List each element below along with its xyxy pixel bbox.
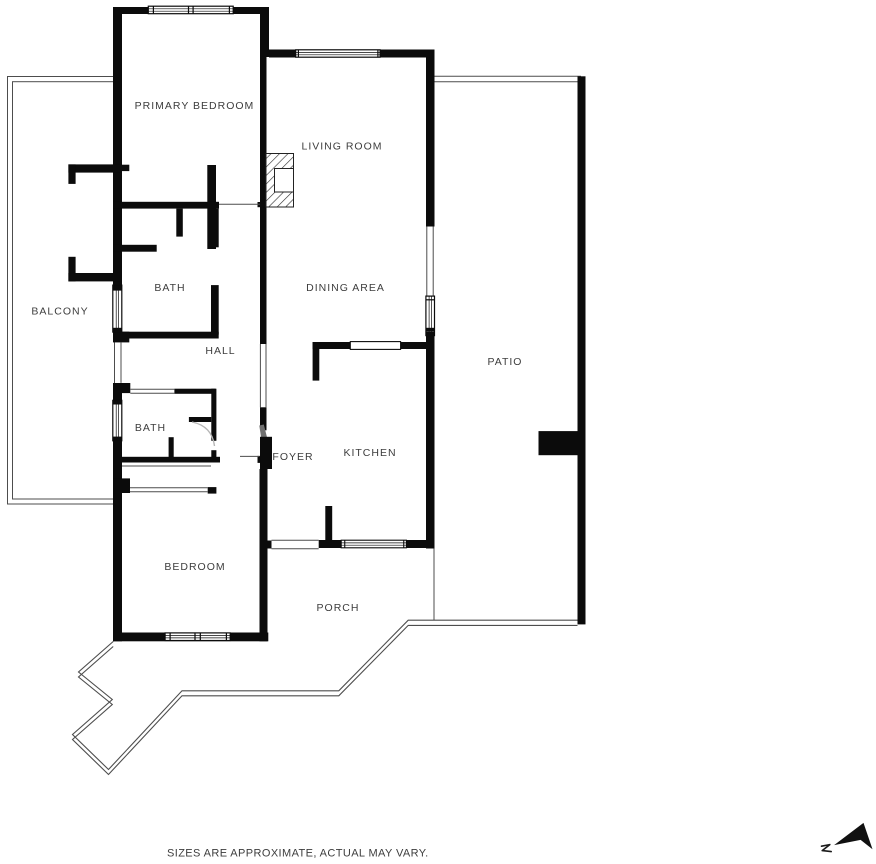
svg-text:PATIO: PATIO [488,356,523,368]
svg-text:KITCHEN: KITCHEN [343,447,396,459]
svg-text:BATH: BATH [154,282,185,294]
svg-text:PRIMARY BEDROOM: PRIMARY BEDROOM [135,100,255,112]
svg-text:BATH: BATH [135,422,166,434]
svg-text:SIZES ARE APPROXIMATE, ACTUAL: SIZES ARE APPROXIMATE, ACTUAL MAY VARY. [167,848,429,860]
svg-text:DINING AREA: DINING AREA [306,282,385,294]
svg-text:PORCH: PORCH [317,602,360,614]
svg-text:FOYER: FOYER [272,451,313,463]
svg-text:LIVING ROOM: LIVING ROOM [301,141,382,153]
svg-text:BEDROOM: BEDROOM [164,561,225,573]
svg-text:HALL: HALL [205,345,235,357]
svg-text:BALCONY: BALCONY [31,306,88,318]
